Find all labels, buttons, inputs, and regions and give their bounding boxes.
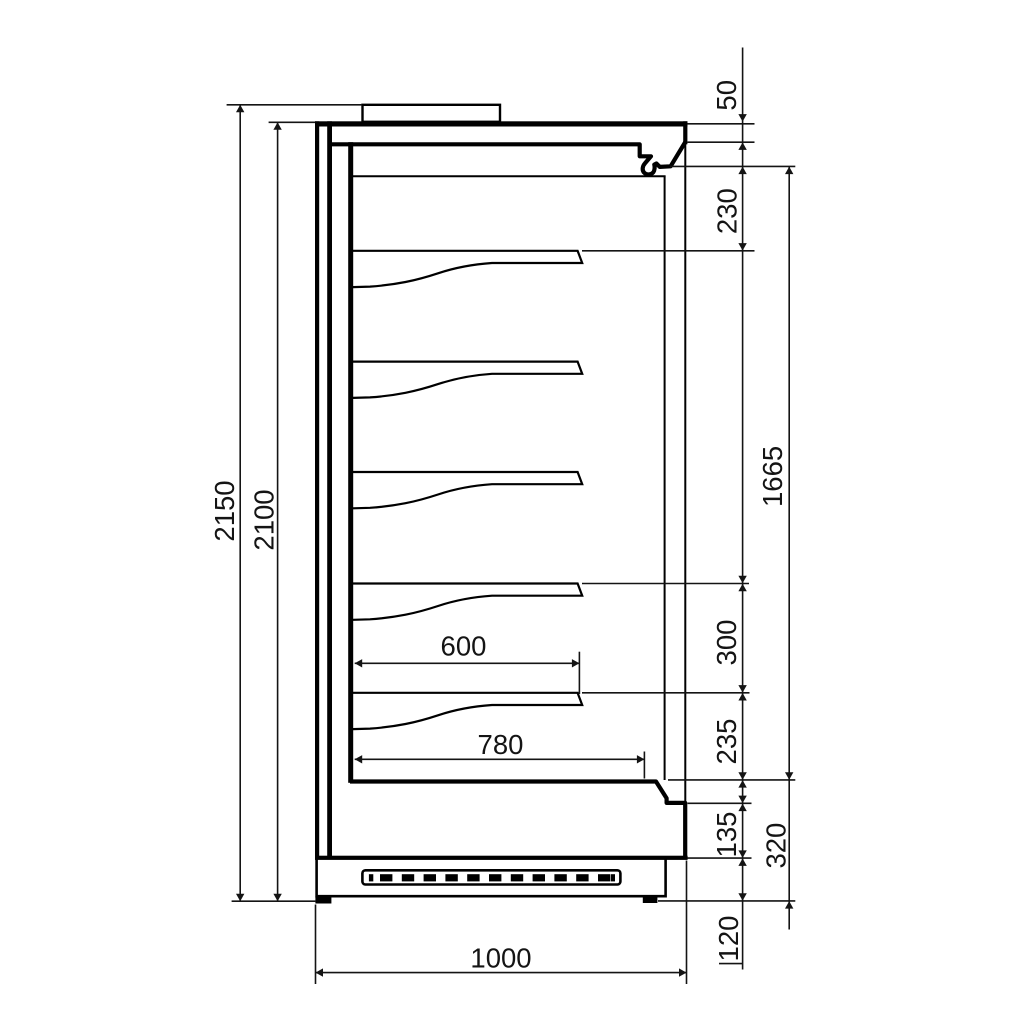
svg-text:235: 235 (711, 719, 742, 765)
svg-text:300: 300 (711, 620, 742, 666)
svg-text:780: 780 (478, 729, 524, 760)
svg-text:1665: 1665 (757, 446, 788, 507)
svg-text:230: 230 (712, 188, 743, 234)
svg-text:2150: 2150 (209, 480, 240, 541)
svg-text:600: 600 (441, 631, 487, 662)
svg-text:320: 320 (761, 823, 792, 869)
svg-text:2100: 2100 (249, 489, 280, 550)
svg-text:50: 50 (711, 80, 742, 111)
svg-text:135: 135 (711, 812, 742, 858)
svg-text:120: 120 (713, 916, 744, 962)
svg-text:1000: 1000 (470, 942, 531, 973)
